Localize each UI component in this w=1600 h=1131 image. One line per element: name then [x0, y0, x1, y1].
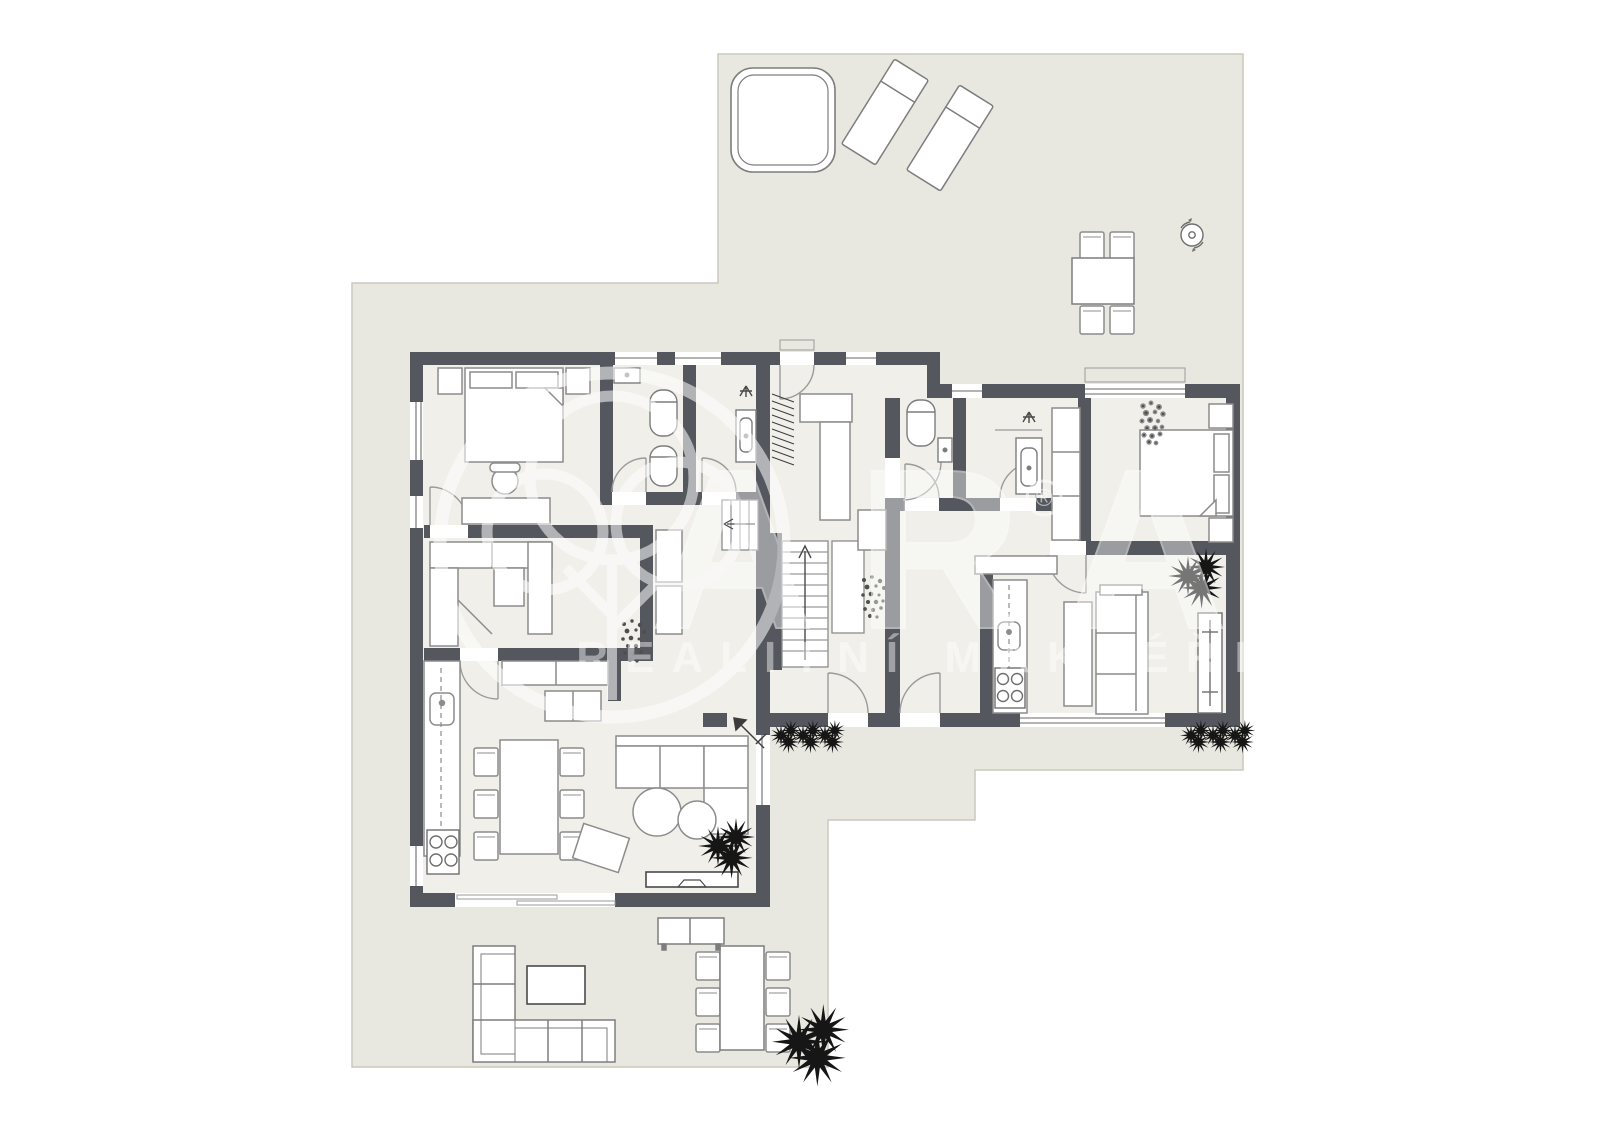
floor-plan-drawing: ARA ® REALITNÍ MAKLÉŘI [0, 0, 1600, 1131]
pillow [470, 372, 512, 388]
watermark-registered: ® [1035, 485, 1053, 512]
outdoor-dining-set-small [1072, 232, 1134, 334]
sofa-backrest [616, 736, 748, 746]
round-coffee-table [633, 788, 681, 836]
cooktop-icon [427, 830, 459, 874]
outdoor-dining-set-large [696, 946, 790, 1052]
outdoor-coffee-table [527, 966, 585, 1004]
outdoor-table [1072, 258, 1134, 304]
kitchen-counter [424, 661, 460, 856]
dining-table [500, 740, 558, 854]
kitchen-sink-icon [430, 693, 454, 725]
hall-closet [800, 394, 852, 422]
tv-set [646, 872, 738, 887]
outdoor-table [720, 946, 764, 1050]
floor-plan-page: ARA ® REALITNÍ MAKLÉŘI [0, 0, 1600, 1131]
nightstand [438, 368, 462, 394]
hot-tub [731, 68, 835, 172]
desk-chair-back [490, 463, 520, 472]
watermark-tagline: REALITNÍ MAKLÉŘI [576, 632, 1264, 682]
